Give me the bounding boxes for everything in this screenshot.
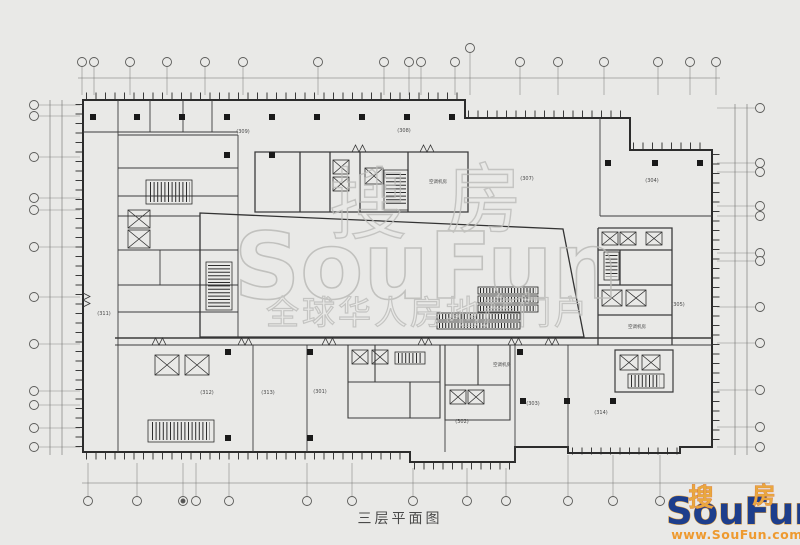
room-label: (314) <box>594 410 607 416</box>
room-label: (308) <box>397 128 410 134</box>
logo-cn-char2: 房 <box>753 482 776 509</box>
room-label: (302) <box>455 419 468 425</box>
watermark-slogan: 全球华人房地产门户 <box>266 293 590 332</box>
drawing-title: 三层平面图 <box>358 511 443 527</box>
soufun-watermark: 搜 房 SouFun 全球华人房地产门户 <box>234 155 618 332</box>
grid-bubbles-top <box>78 44 721 67</box>
room-label: (304) <box>645 178 658 184</box>
mech-room-label: 空调机房 <box>628 323 646 330</box>
room-label: (313) <box>261 390 274 396</box>
mech-room-label: 空调机房 <box>493 361 511 368</box>
room-label: (305) <box>671 302 684 308</box>
room-label: (307) <box>520 176 533 182</box>
soufun-logo: SouFun 搜 房 www.SouFun.com <box>666 482 800 542</box>
grid-bubbles-right <box>756 104 765 452</box>
floor-plan-page: (309) (308) (307) (304) (305) (311) (312… <box>0 0 800 545</box>
room-label: (311) <box>97 311 110 317</box>
room-label: (303) <box>526 401 539 407</box>
grid-bubbles-bottom <box>84 497 665 506</box>
room-label: (301) <box>313 389 326 395</box>
grid-bubbles-left <box>30 101 39 452</box>
floor-plan-drawing: (309) (308) (307) (304) (305) (311) (312… <box>0 0 800 545</box>
room-label: (309) <box>236 129 249 135</box>
mech-room-label: 空调机房 <box>429 178 447 185</box>
logo-cn-char1: 搜 <box>688 483 713 512</box>
room-label: (312) <box>200 390 213 396</box>
logo-url: www.SouFun.com <box>671 527 800 542</box>
